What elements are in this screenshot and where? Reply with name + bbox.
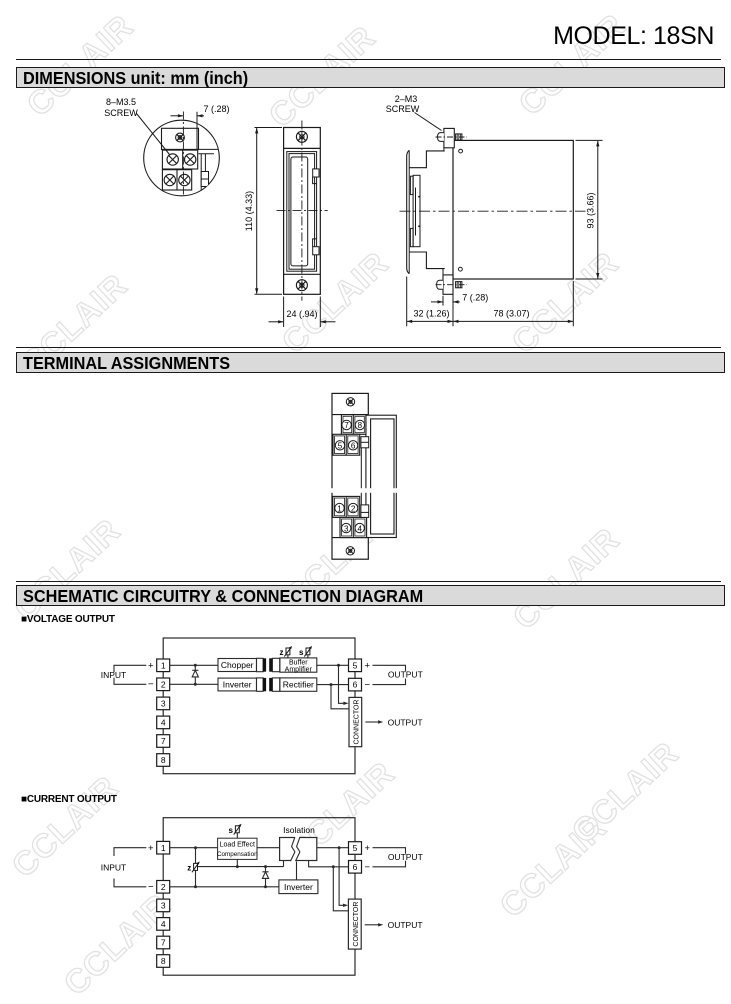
svg-text:5: 5 bbox=[353, 660, 358, 670]
svg-text:Chopper: Chopper bbox=[221, 660, 254, 670]
svg-text:7 (.28): 7 (.28) bbox=[462, 293, 488, 303]
svg-text:s: s bbox=[229, 826, 234, 835]
svg-text:8: 8 bbox=[358, 421, 363, 430]
svg-text:−: − bbox=[365, 862, 371, 873]
svg-text:+: + bbox=[148, 661, 154, 672]
svg-text:Inverter: Inverter bbox=[284, 882, 313, 892]
svg-text:3: 3 bbox=[161, 699, 166, 709]
svg-text:−: − bbox=[365, 680, 371, 691]
svg-text:OUTPUT: OUTPUT bbox=[388, 920, 423, 930]
svg-text:z: z bbox=[187, 863, 191, 872]
svg-text:6: 6 bbox=[351, 442, 356, 451]
svg-text:93 (3.66): 93 (3.66) bbox=[586, 192, 596, 228]
svg-text:1: 1 bbox=[161, 843, 166, 853]
svg-text:Inverter: Inverter bbox=[223, 680, 252, 690]
svg-text:2: 2 bbox=[351, 504, 356, 513]
svg-text:7: 7 bbox=[161, 938, 166, 948]
svg-text:6: 6 bbox=[353, 680, 358, 690]
svg-text:Rectifier: Rectifier bbox=[283, 680, 314, 690]
svg-text:110 (4.33): 110 (4.33) bbox=[244, 191, 254, 231]
svg-text:4: 4 bbox=[161, 718, 166, 728]
svg-text:8: 8 bbox=[161, 956, 166, 966]
svg-text:5: 5 bbox=[353, 843, 358, 853]
svg-text:OUTPUT: OUTPUT bbox=[388, 852, 423, 862]
svg-text:Compensation: Compensation bbox=[217, 851, 258, 858]
svg-text:Isolation: Isolation bbox=[283, 825, 315, 835]
svg-text:5: 5 bbox=[338, 442, 343, 451]
svg-text:1: 1 bbox=[337, 504, 342, 513]
svg-text:s: s bbox=[299, 648, 304, 657]
svg-text:8–M3.5: 8–M3.5 bbox=[106, 97, 136, 107]
svg-text:INPUT: INPUT bbox=[101, 670, 127, 680]
svg-text:+: + bbox=[365, 661, 371, 672]
svg-text:4: 4 bbox=[357, 524, 362, 533]
svg-text:2: 2 bbox=[161, 679, 166, 689]
svg-text:3: 3 bbox=[344, 524, 349, 533]
svg-text:OUTPUT: OUTPUT bbox=[388, 670, 423, 680]
svg-text:Amplifier: Amplifier bbox=[285, 667, 313, 674]
svg-text:7 (.28): 7 (.28) bbox=[204, 104, 230, 114]
svg-text:z: z bbox=[280, 648, 284, 657]
svg-text:4: 4 bbox=[161, 919, 166, 929]
svg-text:SCREW: SCREW bbox=[104, 108, 138, 118]
svg-text:2–M3: 2–M3 bbox=[395, 94, 418, 104]
svg-text:Load Effect: Load Effect bbox=[220, 842, 255, 849]
svg-text:+: + bbox=[148, 843, 154, 854]
svg-text:3: 3 bbox=[161, 901, 166, 911]
svg-text:6: 6 bbox=[353, 862, 358, 872]
svg-text:CONNECTOR: CONNECTOR bbox=[353, 902, 360, 947]
svg-text:7: 7 bbox=[344, 421, 349, 430]
svg-text:INPUT: INPUT bbox=[101, 862, 127, 872]
svg-text:7: 7 bbox=[161, 736, 166, 746]
svg-text:−: − bbox=[148, 882, 154, 893]
svg-text:Buffer: Buffer bbox=[289, 660, 308, 667]
svg-text:32 (1.26): 32 (1.26) bbox=[413, 308, 449, 318]
svg-text:24 (.94): 24 (.94) bbox=[286, 309, 317, 319]
svg-text:CONNECTOR: CONNECTOR bbox=[353, 700, 360, 745]
svg-text:1: 1 bbox=[161, 660, 166, 670]
svg-text:78 (3.07): 78 (3.07) bbox=[493, 308, 529, 318]
svg-text:2: 2 bbox=[161, 882, 166, 892]
svg-text:OUTPUT: OUTPUT bbox=[388, 717, 423, 727]
svg-text:+: + bbox=[365, 843, 371, 854]
svg-text:−: − bbox=[148, 679, 154, 690]
svg-text:8: 8 bbox=[161, 755, 166, 765]
